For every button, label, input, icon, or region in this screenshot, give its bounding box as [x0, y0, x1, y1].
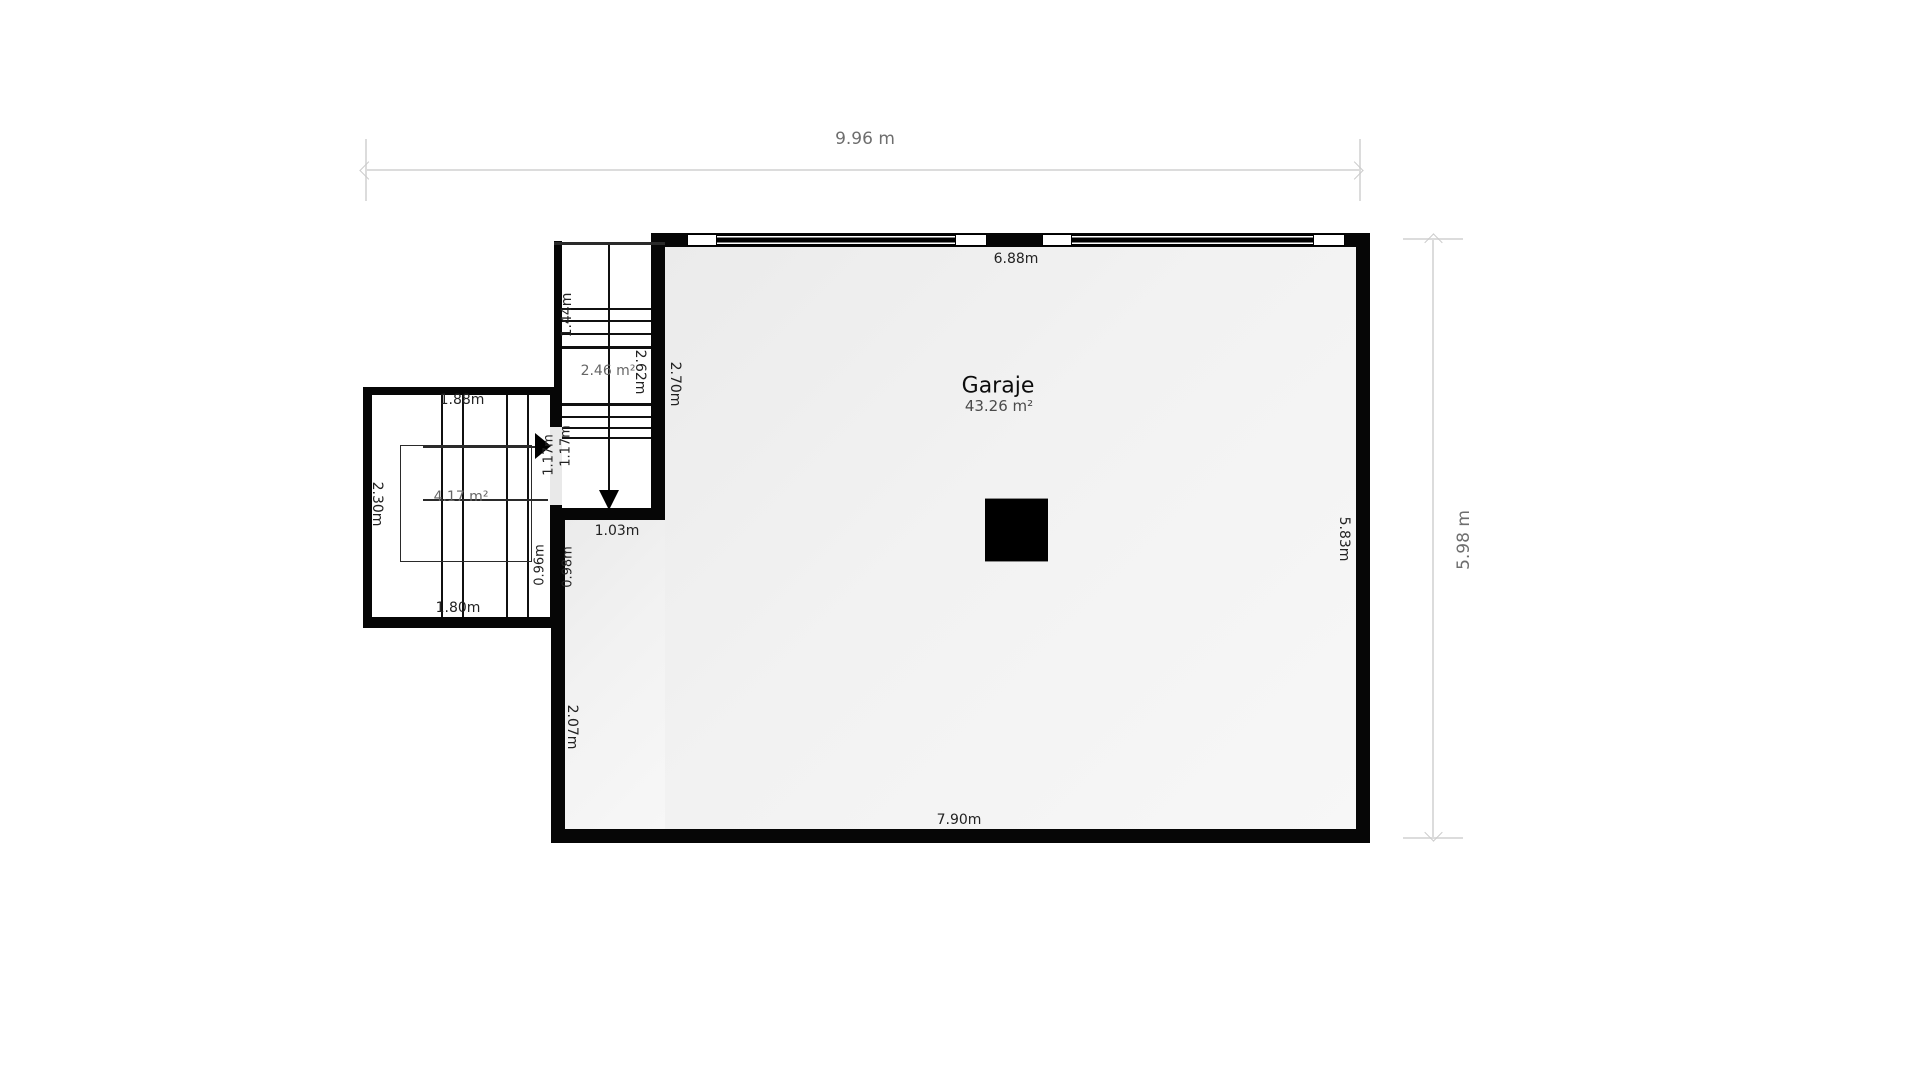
- floor-plan-canvas: 9.96 m 5.98 m: [0, 0, 1920, 1080]
- garage-name-label: Garaje: [962, 374, 1035, 399]
- garage-right-height-label: 5.83m: [1336, 517, 1352, 562]
- right-dimension-line: [1432, 239, 1434, 838]
- side-room-top-width-label: 1.88m: [440, 392, 485, 408]
- side-room-wall-segment-label-a: 0.96m: [533, 544, 548, 586]
- stair-tread: [562, 333, 651, 335]
- garage-area-label: 43.26 m²: [965, 397, 1033, 415]
- stair-tread: [562, 416, 651, 418]
- side-room-wall-segment-label-b: 0.98m: [561, 546, 576, 588]
- garage-left-lower-height-label: 2.07m: [564, 705, 580, 750]
- garage-left-upper-height-label: 2.70m: [667, 362, 683, 407]
- stair-tread: [562, 308, 651, 310]
- side-room-door-width-label-a: 1.17m: [542, 434, 557, 476]
- side-room-bottom-wall: [363, 617, 565, 628]
- garage-pillar: [985, 498, 1048, 562]
- staircase-upper-flight-label: 1.44m: [559, 293, 575, 338]
- garage-floor-left-extension: [565, 520, 665, 829]
- garage-bottom-wall: [551, 829, 1370, 843]
- stair-tread: [562, 346, 651, 349]
- right-dimension-arrow-top: [1424, 233, 1442, 251]
- stair-tread: [562, 427, 651, 429]
- garage-bottom-width-label: 7.90m: [937, 812, 982, 828]
- window-frame-4: [1313, 234, 1345, 246]
- window-frame-2: [955, 234, 987, 246]
- window-glazing-2: [1072, 234, 1313, 246]
- window-glazing-1: [717, 234, 955, 246]
- side-room-right-wall-upper: [550, 387, 562, 427]
- stair-tread: [562, 437, 651, 439]
- side-room-arrow-line: [423, 446, 537, 448]
- side-room-left-height-label: 2.30m: [369, 482, 385, 527]
- side-room-area-label: 4.17 m²: [434, 489, 489, 505]
- side-room-door-width-label-b: 1.17m: [559, 425, 574, 467]
- overall-width-label: 9.96 m: [835, 129, 895, 149]
- overall-height-label: 5.98 m: [1454, 510, 1474, 570]
- window-frame-1: [687, 234, 717, 246]
- garage-right-wall: [1356, 233, 1370, 843]
- stair-tread: [562, 320, 651, 322]
- garage-top-width-label: 6.88m: [994, 251, 1039, 267]
- staircase-length-label: 2.62m: [632, 350, 648, 395]
- top-dimension-arrow-left: [359, 161, 377, 179]
- side-room-bottom-width-label: 1.80m: [436, 600, 481, 616]
- staircase-area-label: 2.46 m²: [581, 363, 636, 379]
- staircase-right-wall: [651, 247, 665, 518]
- top-dimension-line: [366, 169, 1360, 171]
- window-frame-3: [1042, 234, 1072, 246]
- stair-tread: [562, 403, 651, 406]
- stair-opening-width-label: 1.03m: [595, 523, 640, 539]
- stair-direction-arrow-icon: [599, 490, 619, 510]
